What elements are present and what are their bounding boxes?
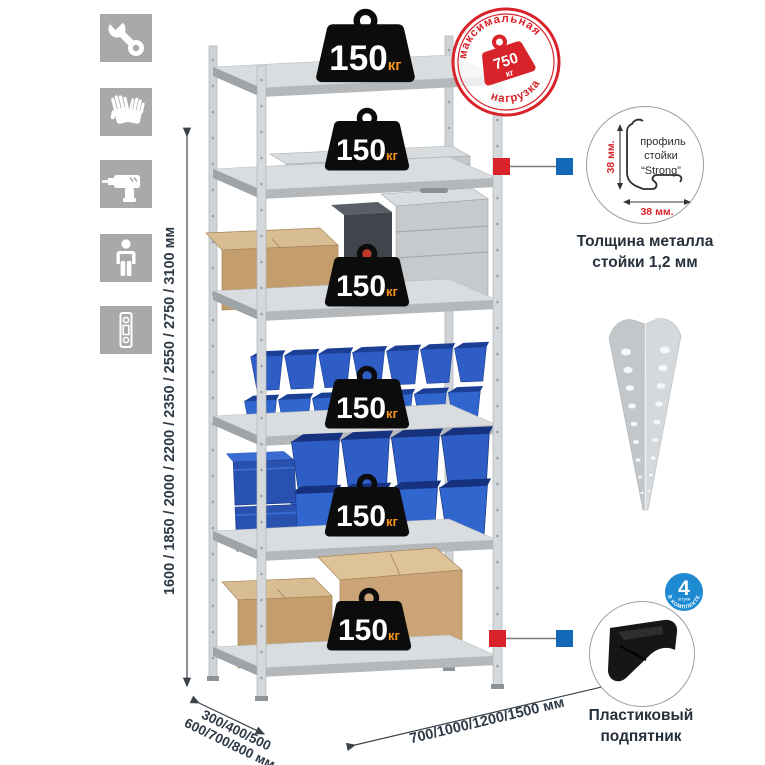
count-badge-small: штуки bbox=[678, 597, 691, 602]
weight-badge-1: 150 кг bbox=[316, 12, 415, 82]
profile-vertical-dim: 38 мм. bbox=[605, 140, 617, 173]
plastic-foot-line1: Пластиковый bbox=[576, 706, 706, 727]
svg-text:150: 150 bbox=[336, 134, 386, 167]
plastic-foot-caption: Пластиковый подпятник bbox=[576, 706, 706, 748]
svg-text:кг: кг bbox=[386, 284, 399, 299]
plastic-foot-circle bbox=[589, 601, 695, 707]
profile-label-line2: стойки bbox=[644, 150, 678, 162]
svg-text:150: 150 bbox=[336, 392, 386, 425]
profile-callout-connector bbox=[493, 158, 573, 175]
svg-text:кг: кг bbox=[388, 628, 401, 643]
profile-label-line1: профиль bbox=[640, 136, 686, 148]
max-load-stamp: 750 кг максимальная нагрузка bbox=[439, 0, 573, 129]
weight-badge-2: 150 кг bbox=[325, 111, 409, 171]
svg-text:150: 150 bbox=[329, 39, 388, 78]
svg-text:150: 150 bbox=[336, 500, 386, 533]
profile-detail-circle: профиль стойки “Strong” 38 мм. 38 мм. bbox=[586, 106, 704, 224]
svg-text:150: 150 bbox=[338, 614, 388, 647]
metal-thickness-caption: Толщина металла стойки 1,2 мм bbox=[570, 232, 720, 274]
svg-text:кг: кг bbox=[388, 57, 402, 74]
svg-text:кг: кг bbox=[386, 514, 399, 529]
plastic-foot-line2: подпятник bbox=[576, 727, 706, 748]
upright-profile-image bbox=[599, 310, 691, 525]
profile-horizontal-dim: 38 мм. bbox=[640, 206, 673, 218]
metal-thickness-line1: Толщина металла bbox=[570, 232, 720, 253]
metal-thickness-line2: стойки 1,2 мм bbox=[570, 253, 720, 274]
height-dimension-label: 1600 / 1850 / 2000 / 2200 / 2350 / 2550 … bbox=[162, 227, 178, 595]
svg-text:150: 150 bbox=[336, 270, 386, 303]
count-badge: 4 штуки в комплекте bbox=[662, 570, 706, 614]
product-infographic: 150 кг 150 кг 150 кг 150 кг 150 кг 150 к… bbox=[0, 0, 765, 765]
svg-text:кг: кг bbox=[386, 148, 399, 163]
profile-label-line3: “Strong” bbox=[641, 165, 681, 177]
svg-text:кг: кг bbox=[386, 406, 399, 421]
foot-callout-connector bbox=[489, 630, 573, 647]
